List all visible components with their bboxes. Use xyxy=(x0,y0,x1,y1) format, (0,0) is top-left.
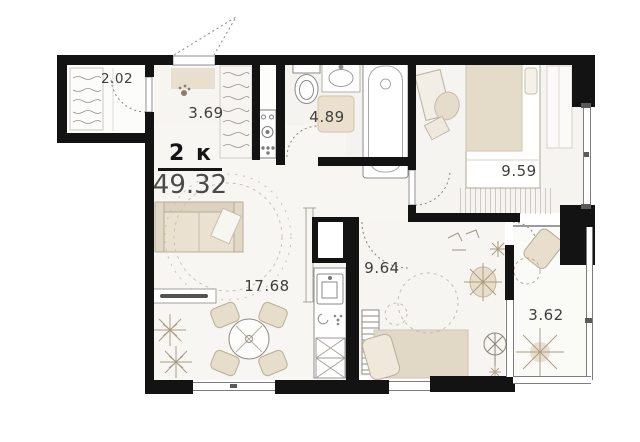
room-area-label-wardrobe: 2.02 xyxy=(92,71,142,87)
wall-top-main xyxy=(215,55,595,65)
room-area-label-kitchen-room: 9.64 xyxy=(355,259,409,277)
wall-balcony-door-side xyxy=(505,245,514,300)
wall-bottom-right xyxy=(430,376,515,392)
kitchen-room-rug xyxy=(385,273,458,333)
total-area-label: 49.32 xyxy=(150,170,230,200)
tv-stand xyxy=(152,289,216,303)
room-area-label-living: 17.68 xyxy=(238,277,296,295)
washing-machine xyxy=(259,110,276,158)
wall-niche-bath xyxy=(276,55,285,165)
balcony-edge-top xyxy=(513,225,560,227)
apartment-type-label: 2 к xyxy=(156,141,226,166)
wall-main-left xyxy=(145,125,154,394)
balcony-plant xyxy=(516,328,564,376)
duct-shaft-inset xyxy=(318,222,343,258)
sofa xyxy=(155,202,243,252)
wall-bottom-mid xyxy=(275,380,389,394)
toilet xyxy=(293,64,320,104)
bedroom-door xyxy=(409,170,450,205)
room-area-label-hallway: 3.69 xyxy=(179,104,233,122)
wall-divider xyxy=(408,213,520,222)
wall-bottom-left xyxy=(145,380,193,394)
wall-bath-bedroom-a xyxy=(408,55,416,170)
bedroom-chair xyxy=(415,70,463,140)
floor-lamp xyxy=(484,333,506,378)
hallway-rug xyxy=(171,68,215,96)
room-area-label-balcony: 3.62 xyxy=(519,306,573,324)
wall-wardrobe-right-a xyxy=(145,55,154,77)
kitchen-room-plant xyxy=(464,263,502,301)
sink xyxy=(322,62,360,92)
window-marker xyxy=(581,204,591,209)
window-kitchen-bottom xyxy=(389,381,430,391)
coat-rack xyxy=(448,230,506,257)
kitchen-room-bed xyxy=(361,330,468,381)
kitchen-counter xyxy=(314,268,346,378)
balcony-glazing-right xyxy=(586,227,593,380)
window-marker xyxy=(584,152,589,157)
bathroom-door-arc xyxy=(287,126,318,157)
living-plants xyxy=(154,314,192,378)
wall-kitchen-vertical xyxy=(346,217,359,380)
bedroom-console xyxy=(547,66,572,148)
balcony-chair xyxy=(514,227,564,284)
window-marker xyxy=(581,103,591,108)
wall-hall-niche xyxy=(252,55,260,160)
wall-left-wing xyxy=(57,55,67,143)
wall-top-left xyxy=(57,55,173,65)
dining-set xyxy=(209,301,289,377)
window-balcony-inner xyxy=(506,300,514,377)
room-area-label-bedroom: 9.59 xyxy=(492,162,546,180)
balcony-glazing-bottom xyxy=(513,376,591,384)
wall-wing-bottom xyxy=(57,133,153,143)
wall-bath-bottom xyxy=(318,157,416,166)
room-area-label-bathroom: 4.89 xyxy=(300,108,354,126)
wall-top-right-block xyxy=(572,63,595,107)
floor-plan: 2 к 49.32 2.02 3.69 4.89 9.59 17.68 9.64… xyxy=(0,0,640,442)
window-marker xyxy=(230,384,237,388)
wall-wardrobe-right-b xyxy=(145,112,154,132)
window-marker xyxy=(585,318,592,323)
